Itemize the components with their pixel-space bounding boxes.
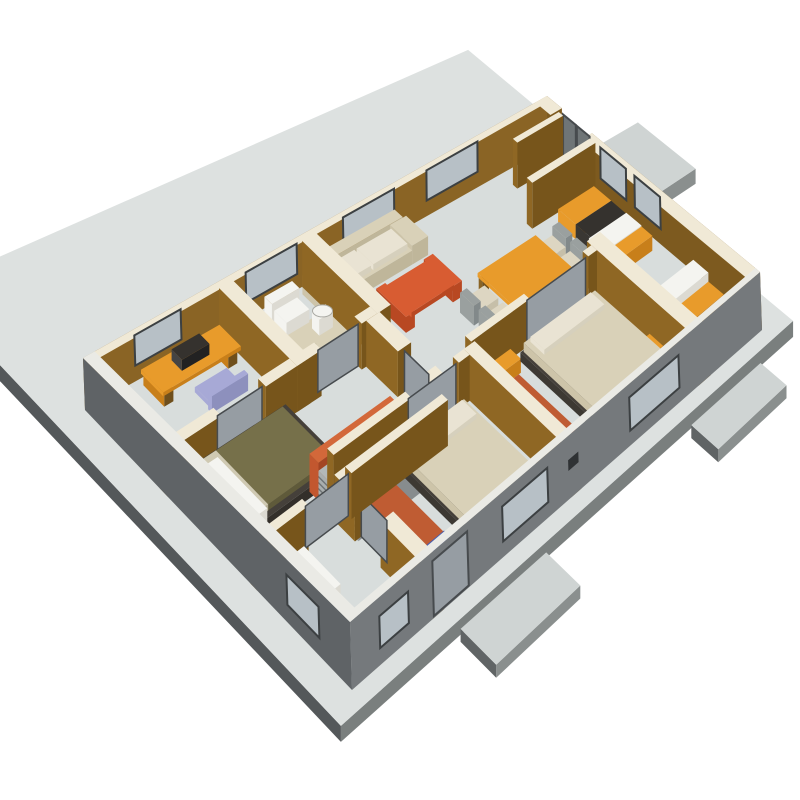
floor-plan-stage xyxy=(0,0,800,800)
floor-plan-3d-render xyxy=(0,0,800,800)
entry-stub-1-face-sw xyxy=(513,139,517,189)
entry-stub-2-face-sw xyxy=(527,178,533,229)
sink-basin xyxy=(313,305,333,317)
